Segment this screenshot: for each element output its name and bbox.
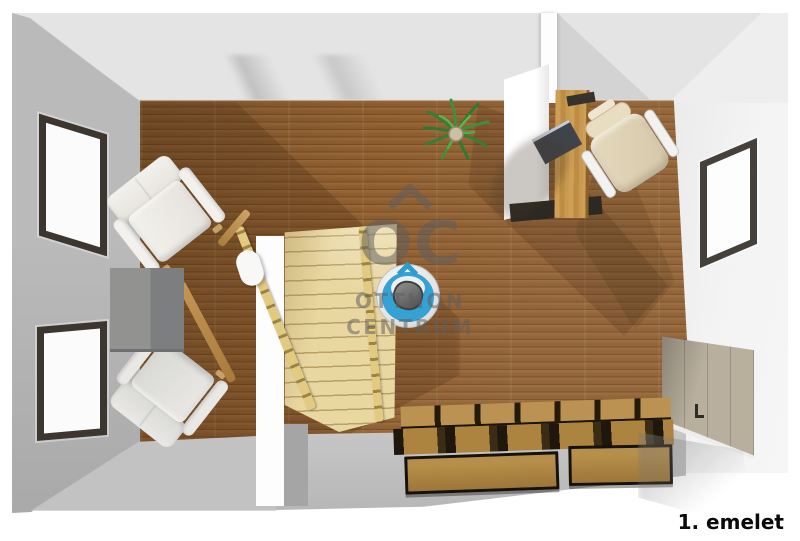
stairwell-wall — [284, 424, 308, 506]
potted-plant — [420, 96, 492, 164]
watermark-line2: CENTRUM — [322, 315, 498, 339]
circumflex-icon — [386, 184, 434, 210]
floorplan-3d-render: OC OTTHON CENTRUM 1. emelet — [0, 0, 800, 541]
window-left-top — [39, 114, 107, 257]
bed-drawer — [404, 451, 559, 494]
floor-label: 1. emelet — [678, 510, 784, 534]
watermark: OC OTTHON CENTRUM — [322, 184, 498, 339]
wardrobe-handle — [695, 415, 704, 418]
watermark-line1: OTTHON — [322, 289, 498, 313]
armchair-foot — [212, 223, 224, 234]
watermark-logo: OC — [322, 216, 498, 274]
left-wall — [12, 13, 140, 518]
side-table — [110, 268, 184, 352]
window-left-bottom — [37, 321, 107, 441]
